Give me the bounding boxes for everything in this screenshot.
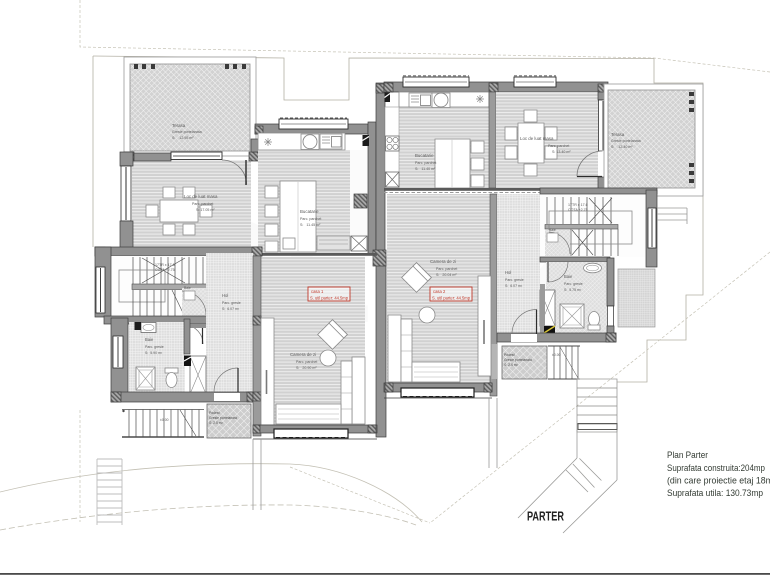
svg-text:Podest: Podest: [209, 411, 220, 415]
svg-text:Parc. gresie: Parc. gresie: [564, 282, 583, 286]
svg-text:Baie: Baie: [549, 228, 556, 232]
svg-text:Suprafata construita:204mp: Suprafata construita:204mp: [667, 463, 765, 473]
svg-text:S: 2.5 m²: S: 2.5 m²: [209, 421, 224, 425]
svg-text:casa 1: casa 1: [311, 289, 324, 294]
svg-text:Baie: Baie: [184, 286, 191, 290]
svg-text:S: 2.5 m²: S: 2.5 m²: [504, 363, 519, 367]
svg-text:±0.00: ±0.00: [160, 418, 169, 422]
svg-text:Terasa: Terasa: [611, 132, 625, 137]
svg-text:Parc. parchet: Parc. parchet: [192, 202, 213, 206]
svg-text:S. util parter: 44.5mp: S. util parter: 44.5mp: [432, 296, 471, 301]
svg-text:Parc. parchet: Parc. parchet: [300, 217, 321, 221]
svg-text:S: 5.75 m²: S: 5.75 m²: [564, 288, 582, 292]
svg-text:Parc. gresie: Parc. gresie: [145, 345, 164, 349]
svg-text:17TR x 17.6: 17TR x 17.6: [155, 263, 175, 267]
svg-text:Hol: Hol: [222, 293, 228, 298]
svg-text:Parc. parchet: Parc. parchet: [296, 360, 317, 364]
svg-text:Gresie portelanata: Gresie portelanata: [172, 130, 202, 134]
svg-text:S: 20.04 m²: S: 20.04 m²: [436, 273, 457, 277]
svg-text:S: 11.45 m²: S: 11.45 m²: [300, 223, 321, 227]
svg-text:Gresie portelanata: Gresie portelanata: [611, 139, 641, 143]
svg-text:Baie: Baie: [564, 274, 573, 279]
svg-text:Hol: Hol: [505, 270, 511, 275]
svg-text:S: 20.90 m²: S: 20.90 m²: [296, 366, 317, 370]
svg-text:Loc de luat masa: Loc de luat masa: [520, 136, 554, 141]
svg-text:Parc. parchet: Parc. parchet: [548, 144, 569, 148]
svg-text:Gresie portelanata: Gresie portelanata: [209, 416, 237, 420]
svg-text:(din care proiectie etaj 18m: (din care proiectie etaj 18m: [667, 476, 770, 486]
svg-text:S: 6.07 m²: S: 6.07 m²: [505, 284, 523, 288]
svg-text:Bucatarie: Bucatarie: [415, 153, 434, 158]
svg-text:PARTER: PARTER: [527, 510, 564, 524]
svg-text:S: 12.95 m²: S: 12.95 m²: [172, 136, 194, 140]
svg-text:S: 13.40 m²: S: 13.40 m²: [552, 150, 571, 154]
svg-text:17TR x 17.6: 17TR x 17.6: [568, 203, 588, 207]
svg-text:Gresie portelanata: Gresie portelanata: [504, 358, 532, 362]
svg-text:Suprafata utila: 130.73mp: Suprafata utila: 130.73mp: [667, 488, 763, 498]
svg-text:S: 5.90 m²: S: 5.90 m²: [145, 351, 163, 355]
svg-text:Baie: Baie: [145, 337, 154, 342]
svg-text:S. util parter: 44.5mp: S. util parter: 44.5mp: [310, 296, 349, 301]
svg-text:Camera de zi: Camera de zi: [430, 259, 456, 264]
svg-text:Loc de luat masa: Loc de luat masa: [184, 194, 218, 199]
svg-text:S: 11.40 m²: S: 11.40 m²: [415, 167, 436, 171]
svg-text:Parc. parchet: Parc. parchet: [415, 161, 436, 165]
svg-text:casa 2: casa 2: [433, 289, 446, 294]
svg-text:Parc. parchet: Parc. parchet: [436, 267, 457, 271]
svg-text:S: 17.05 m²: S: 17.05 m²: [196, 208, 215, 212]
svg-text:Camera de zi: Camera de zi: [290, 352, 316, 357]
svg-text:COTA +2.75: COTA +2.75: [155, 268, 175, 272]
svg-text:Bucatarie: Bucatarie: [300, 209, 319, 214]
svg-text:S: 12.40 m²: S: 12.40 m²: [611, 145, 633, 149]
svg-text:COTA +2.75: COTA +2.75: [568, 208, 588, 212]
svg-text:Plan Parter: Plan Parter: [667, 450, 708, 460]
svg-text:S: 6.07 m²: S: 6.07 m²: [222, 307, 240, 311]
svg-text:Podest: Podest: [504, 353, 515, 357]
svg-text:Terasa: Terasa: [172, 123, 186, 128]
svg-text:Parc. gresie: Parc. gresie: [222, 301, 241, 305]
svg-text:Parc. gresie: Parc. gresie: [505, 278, 524, 282]
svg-text:±0.00: ±0.00: [552, 353, 561, 357]
